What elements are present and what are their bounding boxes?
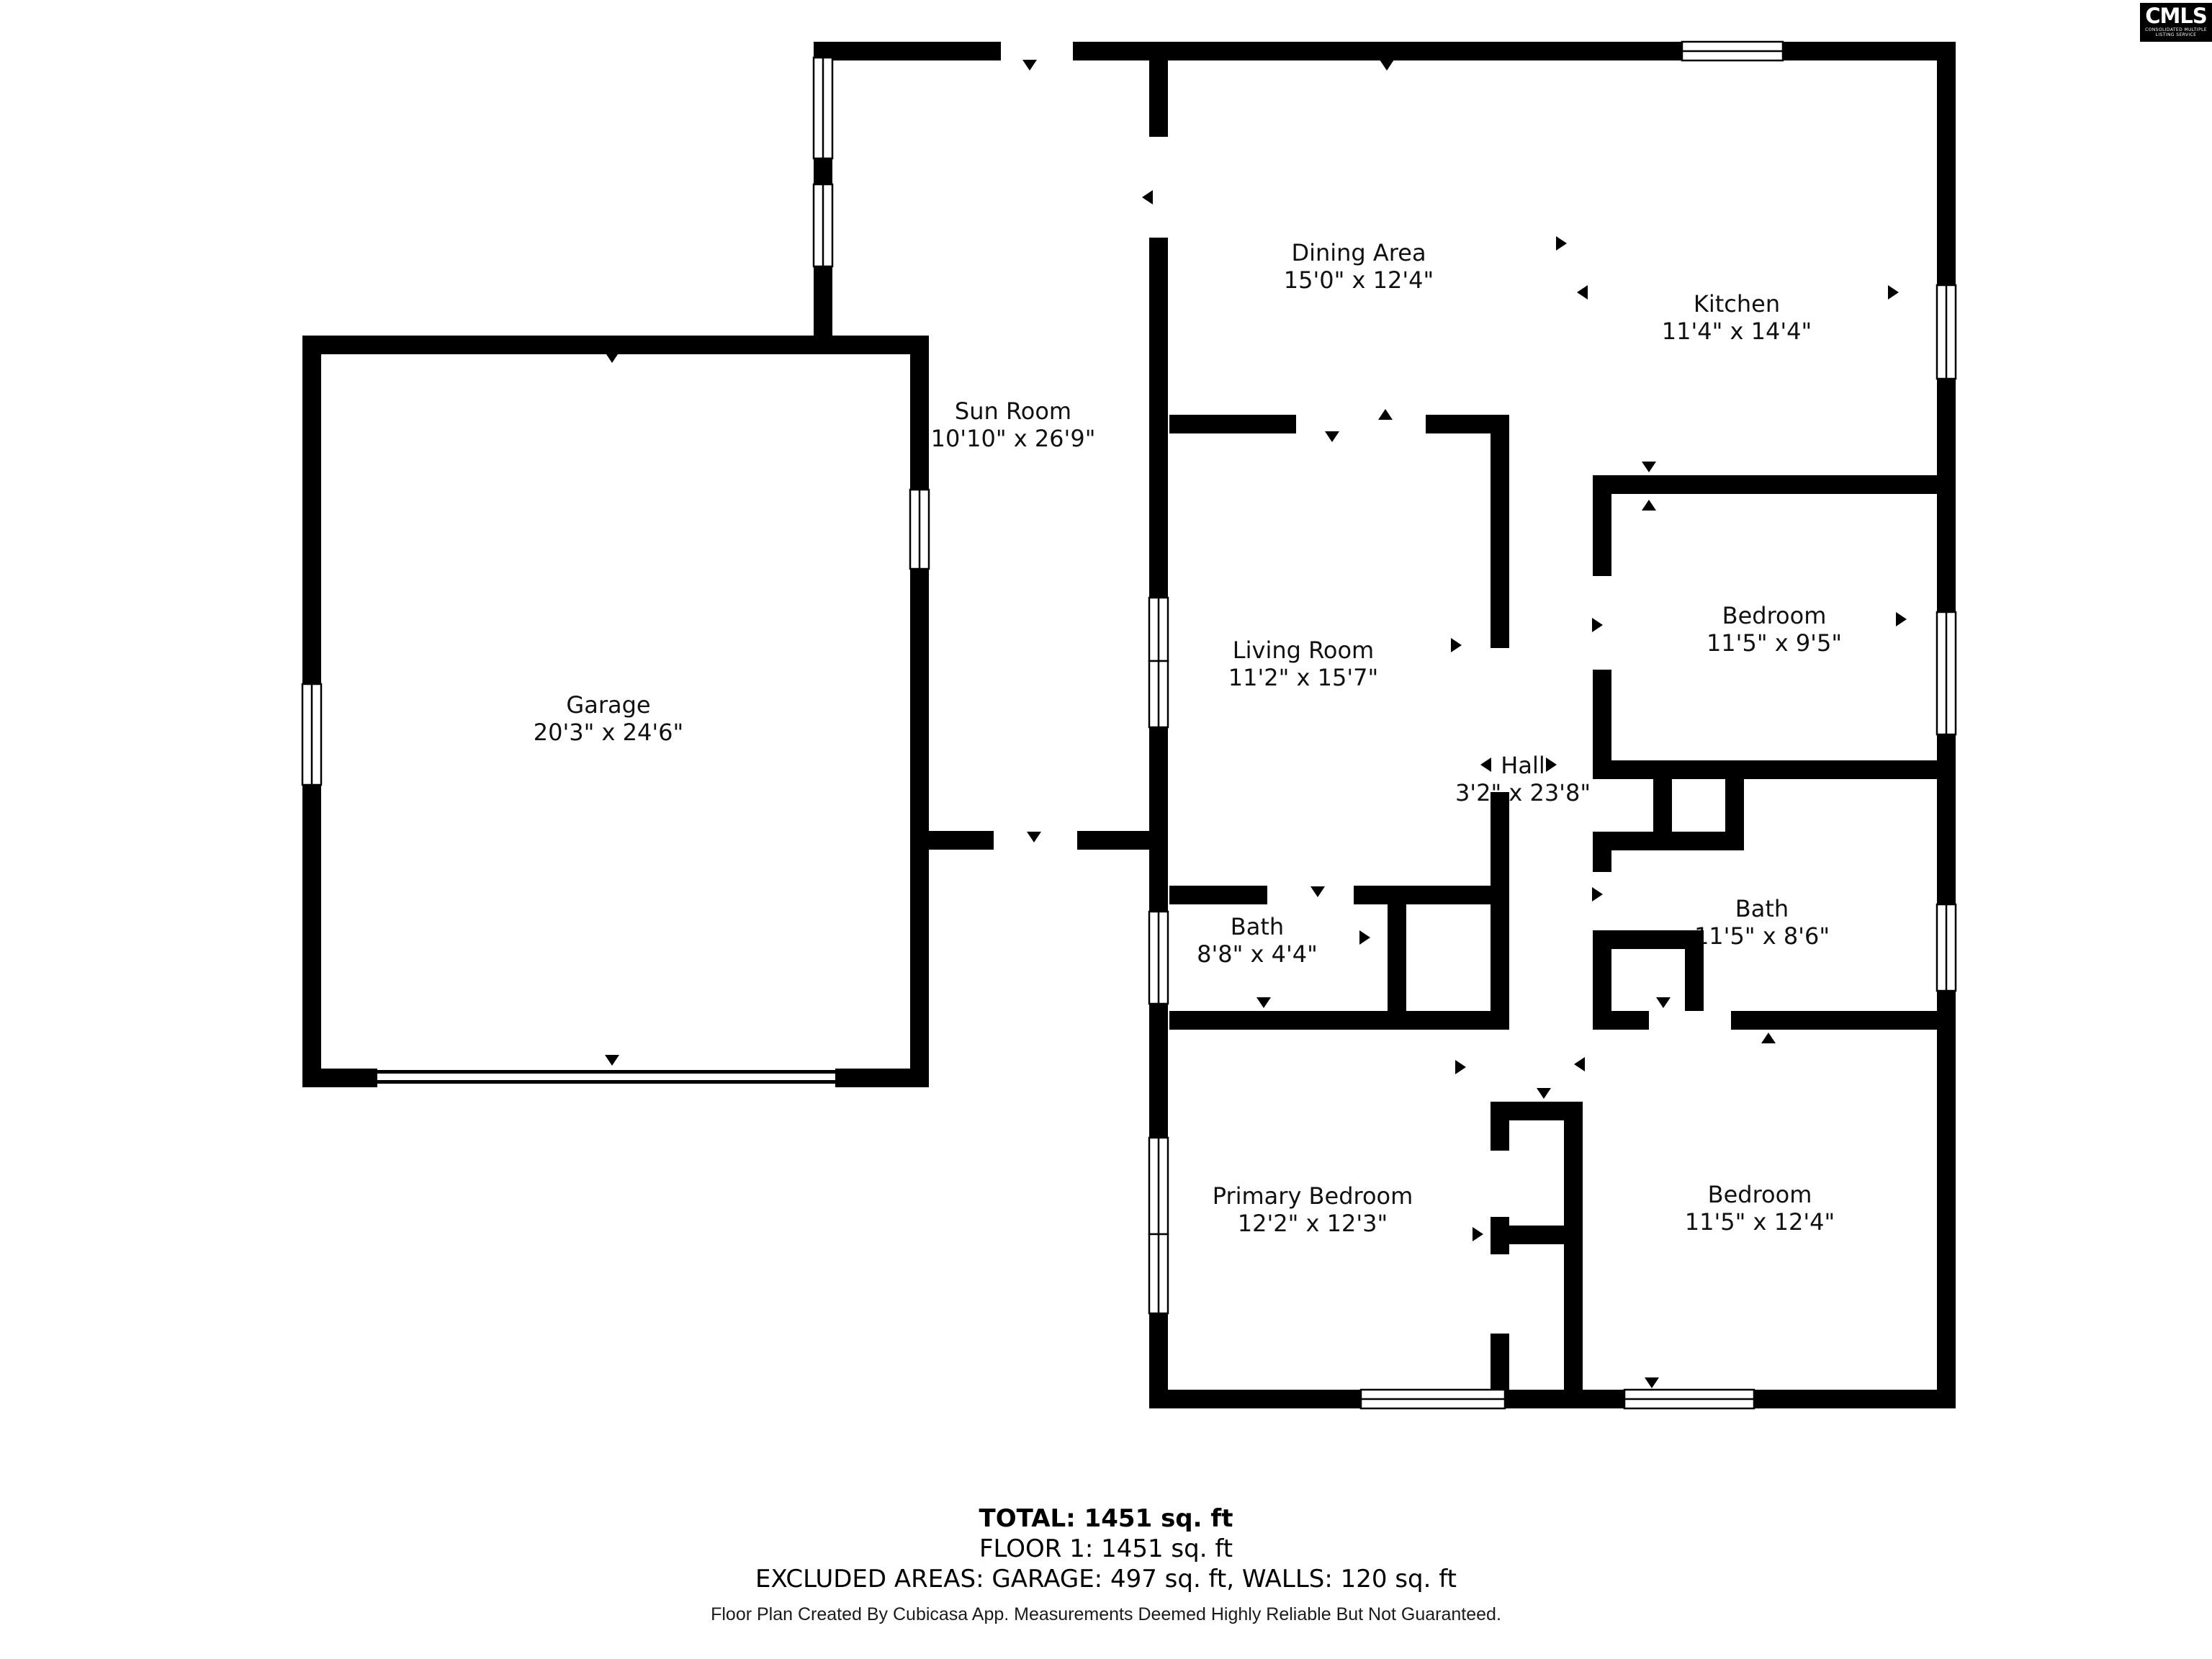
cmls-logo-text: CMLS [2140,4,2212,27]
room-name: Living Room [1228,637,1378,664]
excluded-area-text: EXCLUDED AREAS: GARAGE: 497 sq. ft, WALL… [0,1564,2212,1594]
garage-door [377,1070,835,1084]
room-dims: 15'0" x 12'4" [1284,266,1434,294]
room-dims: 8'8" x 4'4" [1197,940,1318,968]
room-dims: 11'5" x 8'6" [1694,922,1830,950]
floorplan-graphic [0,0,2212,1659]
cmls-logo-subtext: CONSOLIDATED MULTIPLE LISTING SERVICE [2140,27,2212,37]
floor-area-text: FLOOR 1: 1451 sq. ft [0,1534,2212,1564]
room-name: Kitchen [1662,290,1812,318]
room-name: Bath [1197,913,1318,940]
room-label-primary-bedroom: Primary Bedroom 12'2" x 12'3" [1213,1182,1413,1237]
room-label-hall: Hall 3'2" x 23'8" [1455,752,1591,806]
room-dims: 11'4" x 14'4" [1662,318,1812,345]
room-name: Sun Room [931,397,1096,425]
room-label-garage: Garage 20'3" x 24'6" [534,691,683,746]
room-label-kitchen: Kitchen 11'4" x 14'4" [1662,290,1812,345]
room-dims: 12'2" x 12'3" [1213,1210,1413,1237]
room-name: Primary Bedroom [1213,1182,1413,1210]
room-dims: 11'2" x 15'7" [1228,664,1378,691]
room-name: Bedroom [1707,602,1842,629]
floorplan-page: Dining Area 15'0" x 12'4" Kitchen 11'4" … [0,0,2212,1659]
room-label-bedroom-top: Bedroom 11'5" x 9'5" [1707,602,1842,657]
room-label-bath-right: Bath 11'5" x 8'6" [1694,895,1830,950]
room-dims: 10'10" x 26'9" [931,425,1096,452]
room-label-dining-area: Dining Area 15'0" x 12'4" [1284,239,1434,294]
disclaimer-text: Floor Plan Created By Cubicasa App. Meas… [0,1604,2212,1625]
room-dims: 11'5" x 9'5" [1707,629,1842,657]
room-label-bath-left: Bath 8'8" x 4'4" [1197,913,1318,968]
room-label-living-room: Living Room 11'2" x 15'7" [1228,637,1378,691]
room-name: Hall [1455,752,1591,779]
room-name: Bath [1694,895,1830,922]
room-dims: 20'3" x 24'6" [534,719,683,746]
room-name: Bedroom [1685,1181,1835,1208]
room-dims: 11'5" x 12'4" [1685,1208,1835,1236]
room-name: Dining Area [1284,239,1434,266]
room-label-sun-room: Sun Room 10'10" x 26'9" [931,397,1096,452]
area-summary: TOTAL: 1451 sq. ft FLOOR 1: 1451 sq. ft … [0,1503,2212,1594]
room-name: Garage [534,691,683,719]
cmls-logo: CMLS CONSOLIDATED MULTIPLE LISTING SERVI… [2140,3,2212,42]
total-area-text: TOTAL: 1451 sq. ft [0,1503,2212,1534]
room-dims: 3'2" x 23'8" [1455,779,1591,806]
room-label-bedroom-bottom: Bedroom 11'5" x 12'4" [1685,1181,1835,1236]
